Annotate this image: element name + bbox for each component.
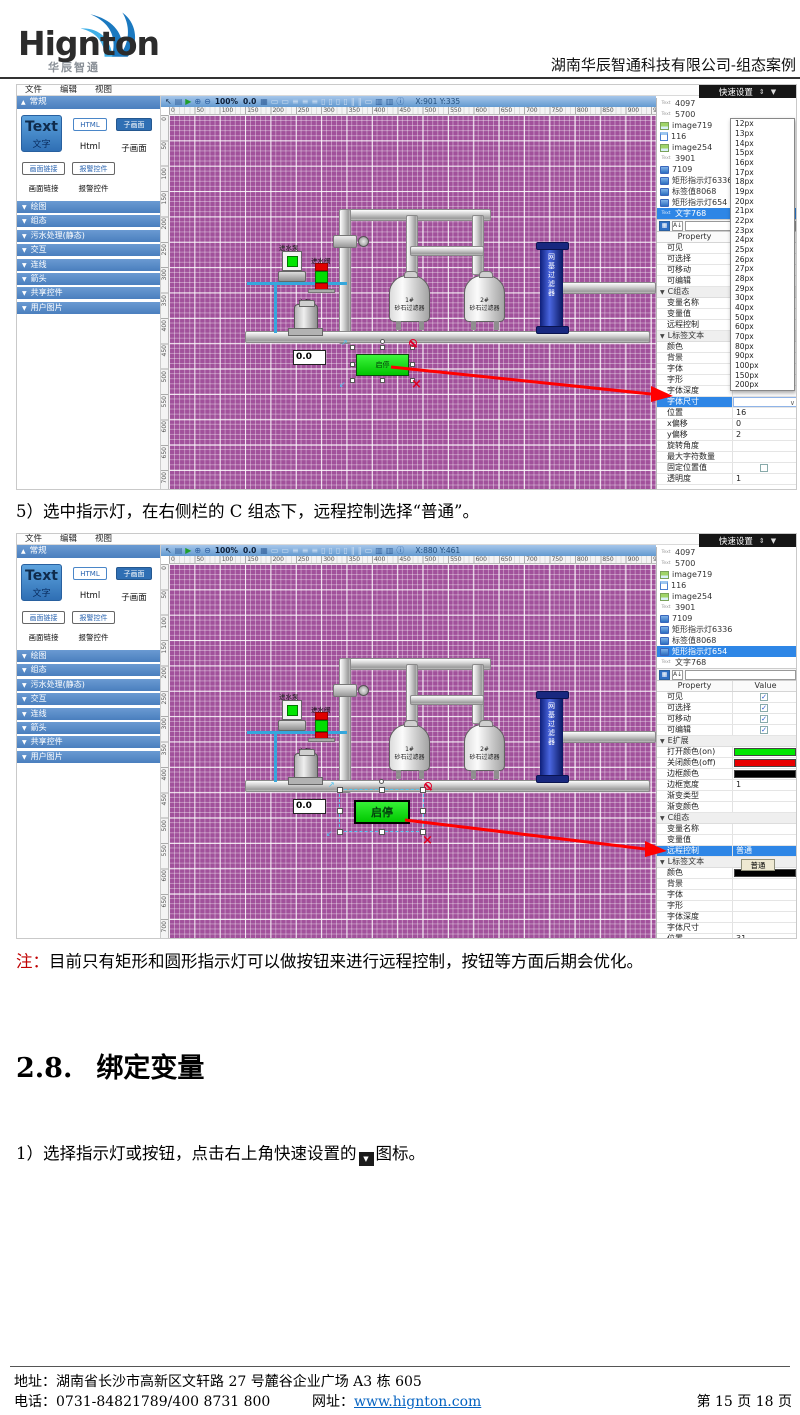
property-name: 变量值 (657, 835, 733, 845)
property-row[interactable]: 透明度1 (657, 474, 797, 485)
panel-section[interactable]: ▼共享控件 (17, 736, 160, 748)
main-pump[interactable] (294, 753, 318, 779)
resize-handle[interactable] (350, 345, 355, 350)
property-name: 字体尺寸 (657, 923, 733, 933)
property-row[interactable]: 可见✓ (657, 692, 797, 703)
pipe-valve[interactable] (333, 235, 357, 248)
zoom-in-icon[interactable]: ⊕ (194, 546, 201, 555)
color-swatch[interactable] (734, 770, 796, 778)
property-row[interactable]: 最大字符数量 (657, 452, 797, 463)
panel-section-common[interactable]: ▲常规 (17, 545, 160, 558)
font-size-option[interactable]: 29px (731, 283, 794, 293)
font-size-option[interactable]: 22px (731, 216, 794, 226)
panel-section[interactable]: ▼污水处理(静态) (17, 230, 160, 242)
tool-palette: Text 文字 HTML Html 子画面 子画面 画面链接 画面链接 报警控件… (17, 109, 160, 201)
object-tree-item[interactable]: 矩形指示灯6336 (657, 624, 797, 635)
font-size-option[interactable]: 200px (731, 380, 794, 390)
ruler-label: 400 (161, 769, 169, 780)
website-link[interactable]: www.hignton.com (354, 1394, 481, 1410)
ruler-label: 350 (161, 744, 169, 755)
font-size-option[interactable]: 18px (731, 177, 794, 187)
pipe-valve[interactable] (333, 684, 357, 697)
blue-filter-column[interactable]: 网基过滤器 (540, 246, 563, 330)
property-name: 固定位置值 (657, 463, 733, 473)
inlet-valve[interactable] (315, 263, 328, 292)
property-value (733, 802, 797, 812)
color-swatch[interactable] (734, 759, 796, 767)
html-tool-button[interactable]: HTML (73, 567, 107, 580)
image-icon (660, 122, 669, 130)
design-canvas[interactable]: 进水泵 进水阀 主泵 1#砂石过滤器 2#砂石过滤器 网基过滤器 0.0 启停 … (169, 115, 656, 490)
screen-link-tool-button[interactable]: 画面链接 (22, 611, 65, 624)
image-tool-icon[interactable]: ▥ (375, 97, 383, 106)
property-value: ✓ (733, 692, 797, 702)
panel-section[interactable]: ▼用户图片 (17, 302, 160, 314)
property-row[interactable]: 字体 (657, 890, 797, 901)
object-tree-item[interactable]: Text4097 (657, 547, 797, 558)
resize-handle[interactable] (380, 345, 385, 350)
category-view-icon[interactable]: ▦ (659, 221, 670, 231)
footer-phone: 电话：0731-84821789/400 8731 800 (14, 1391, 270, 1411)
design-canvas[interactable]: 进水泵 进水阀 主泵 1#砂石过滤器 2#砂石过滤器 网基过滤器 0.0 启停 … (169, 564, 656, 939)
collapse-icon: ▼ (660, 289, 665, 296)
tank-number: 1# (405, 746, 414, 754)
website-label: 网址： (312, 1394, 354, 1410)
run-icon[interactable]: ▶ (185, 546, 191, 555)
property-value (733, 463, 797, 473)
text-tool-button[interactable]: Text 文字 (21, 564, 62, 601)
note-paragraph: 注：目前只有矩形和圆形指示灯可以做按钮来进行远程控制，按钮等方面后期会优化。 (16, 950, 791, 974)
pipe[interactable] (339, 658, 351, 793)
ruler-label: 550 (450, 107, 461, 115)
tank-name: 砂石过滤器 (394, 754, 424, 762)
inlet-pump[interactable] (282, 251, 302, 271)
ruler-label: 100 (222, 556, 233, 564)
resize-handle[interactable] (410, 362, 415, 367)
font-size-option[interactable]: 90px (731, 351, 794, 361)
object-name: 7109 (672, 165, 692, 174)
property-row[interactable]: y偏移2 (657, 430, 797, 441)
property-name: 可见 (657, 692, 733, 702)
disabled-tool-icon: ▭ (271, 546, 279, 555)
property-value (733, 923, 797, 933)
property-row[interactable]: 边框颜色 (657, 769, 797, 780)
main-pump-base (288, 777, 323, 785)
disabled-tool-icon: ▯ (321, 546, 325, 555)
font-size-option[interactable]: 12px (731, 119, 794, 129)
image-tool-icon[interactable]: ▥ (375, 546, 383, 555)
object-tree-item[interactable]: 7109 (657, 613, 797, 624)
object-tree-item[interactable]: Text4097 (657, 98, 797, 109)
font-size-option[interactable]: 26px (731, 254, 794, 264)
property-name: 渐变颜色 (657, 802, 733, 812)
alarm-widget-tool-button[interactable]: 报警控件 (72, 162, 115, 175)
menu-item[interactable]: 文件 (25, 534, 42, 545)
panel-section-label: 共享控件 (31, 288, 63, 297)
cursor-tool-icon[interactable]: ↖ (165, 546, 172, 555)
text-tool-button[interactable]: Text 文字 (21, 115, 62, 152)
panel-section-label: 用户图片 (31, 303, 63, 312)
property-row[interactable]: 变量值 (657, 835, 797, 846)
property-value: 31 (733, 934, 797, 939)
pipe[interactable] (472, 664, 484, 724)
property-value (733, 758, 797, 768)
font-size-option[interactable]: 100px (731, 361, 794, 371)
move-icon[interactable]: ⇕ (759, 88, 765, 96)
subscreen-tool-button[interactable]: 子画面 (116, 118, 152, 131)
resize-handle[interactable] (337, 808, 343, 814)
collapse-icon: ▲ (21, 99, 26, 106)
page-icon (660, 132, 668, 141)
save-icon[interactable]: ▤ (175, 97, 183, 106)
panel-section[interactable]: ▼连线 (17, 259, 160, 271)
panel-section[interactable]: ▼箭头 (17, 273, 160, 285)
property-name: x偏移 (657, 419, 733, 429)
pipe[interactable] (406, 664, 418, 724)
font-size-option[interactable]: 17px (731, 167, 794, 177)
resize-handle[interactable] (379, 829, 385, 835)
panel-section-common[interactable]: ▲常规 (17, 96, 160, 109)
property-row[interactable]: 背景 (657, 879, 797, 890)
alarm-widget-tool-label: 报警控件 (72, 183, 115, 194)
pipe[interactable] (339, 209, 351, 344)
disabled-tool-icon: ▯ (343, 97, 347, 106)
text-tool-en-label: Text (22, 568, 61, 584)
ruler-label: 800 (577, 107, 588, 115)
font-size-option[interactable]: 60px (731, 322, 794, 332)
pipe[interactable] (410, 695, 484, 705)
save-icon[interactable]: ▤ (175, 546, 183, 555)
font-size-option[interactable]: 20px (731, 196, 794, 206)
text-icon: Text (660, 660, 672, 665)
display-icon (660, 626, 669, 634)
property-row[interactable]: 位置16 (657, 408, 797, 419)
signal-line[interactable] (274, 731, 277, 782)
zoom-out-icon[interactable]: ⊖ (204, 97, 211, 106)
property-section[interactable]: ▼C组态 (657, 813, 797, 824)
menu-item[interactable]: 视图 (95, 85, 112, 96)
object-tree-item[interactable]: image719 (657, 569, 797, 580)
panel-section[interactable]: ▼用户图片 (17, 751, 160, 763)
property-name: 变量名称 (657, 824, 733, 834)
property-name: 可移动 (657, 714, 733, 724)
quick-setup-dropdown-icon: ▼ (359, 1152, 374, 1166)
disabled-tool-icon: ▭ (271, 97, 279, 106)
pipe[interactable] (410, 246, 484, 256)
tank-name: 砂石过滤器 (469, 305, 499, 313)
manual-page: Hignton 华辰智通 湖南华辰智通科技有限公司-组态案例 文件编辑视图 快速… (0, 0, 800, 1415)
font-size-option[interactable]: 23px (731, 225, 794, 235)
vertical-ruler: 0501001502002503003504004505005506006507… (161, 115, 169, 490)
font-size-option[interactable]: 70px (731, 332, 794, 342)
property-row[interactable]: 字体尺寸 (657, 923, 797, 934)
property-name: 字体 (657, 364, 733, 374)
grid-icon[interactable]: ▦ (260, 546, 268, 555)
resize-handle[interactable] (350, 378, 355, 383)
property-row[interactable]: 字形 (657, 901, 797, 912)
menu-item[interactable]: 编辑 (60, 85, 77, 96)
resize-handle[interactable] (379, 787, 385, 793)
font-size-option[interactable]: 21px (731, 206, 794, 216)
editor-toolbar: ↖▤▶⊕⊖ 100% 0.0 ▦▭▭≡≡≡▯▯▯▯∥∥▭ ▥▥ⓘ X:901 Y… (161, 96, 656, 107)
info-icon[interactable]: ⓘ (396, 97, 404, 106)
delete-mark-icon[interactable]: × (411, 380, 422, 390)
property-row[interactable]: 旋转角度 (657, 441, 797, 452)
panel-section[interactable]: ▼箭头 (17, 722, 160, 734)
sand-filter-tank-2[interactable]: 2#砂石过滤器 (464, 724, 505, 771)
ruler-label: 250 (298, 556, 309, 564)
sand-filter-tank-1[interactable]: 1#砂石过滤器 (389, 275, 430, 322)
panel-section[interactable]: ▼共享控件 (17, 287, 160, 299)
ruler-label: 100 (161, 168, 169, 179)
property-row[interactable]: 位置31 (657, 934, 797, 939)
quick-setup-dropdown-icon[interactable]: ▼ (771, 88, 776, 96)
property-row[interactable]: 渐变类型 (657, 791, 797, 802)
editor-toolbar: ↖▤▶⊕⊖ 100% 0.0 ▦▭▭≡≡≡▯▯▯▯∥∥▭ ▥▥ⓘ X:880 Y… (161, 545, 656, 556)
valve-flange (308, 289, 335, 293)
property-row[interactable]: 渐变颜色 (657, 802, 797, 813)
resize-handle[interactable] (337, 787, 343, 793)
rotate-handle[interactable] (379, 779, 384, 784)
remote-control-option-chip[interactable]: 普通 (741, 859, 775, 871)
object-name: 7109 (672, 614, 692, 623)
panel-section[interactable]: ▼组态 (17, 664, 160, 676)
valve-flange (308, 738, 335, 742)
property-name: y偏移 (657, 430, 733, 440)
logo-wordmark: Hignton (18, 24, 159, 63)
delete-mark-icon[interactable]: × (422, 836, 433, 846)
object-name: 文字768 (675, 208, 706, 219)
font-size-option[interactable]: 25px (731, 245, 794, 255)
tank-number: 2# (480, 746, 489, 754)
quick-setup-dropdown-icon[interactable]: ▼ (771, 537, 776, 545)
ruler-label: 100 (222, 107, 233, 115)
value-display-box[interactable]: 0.0 (293, 350, 326, 365)
pipe[interactable] (406, 215, 418, 275)
property-value (733, 441, 797, 451)
property-row[interactable]: 远程控制普通 (657, 846, 797, 857)
font-size-option[interactable]: 15px (731, 148, 794, 158)
text-icon: Text (660, 156, 672, 161)
property-row[interactable]: x偏移0 (657, 419, 797, 430)
panel-section[interactable]: ▼绘图 (17, 201, 160, 213)
property-filter-input[interactable] (685, 670, 796, 680)
collapse-icon: ▼ (22, 247, 27, 254)
value-column-header: Value (733, 681, 797, 691)
property-row[interactable]: 固定位置值 (657, 463, 797, 474)
footer-rule (10, 1366, 790, 1367)
ruler-label: 200 (161, 218, 169, 229)
property-row[interactable]: 打开颜色(on) (657, 747, 797, 758)
alarm-widget-tool-button[interactable]: 报警控件 (72, 611, 115, 624)
footer-website: 网址：www.hignton.com (312, 1391, 481, 1411)
valve-handwheel-icon (358, 236, 369, 247)
ruler-label: 400 (374, 107, 385, 115)
disabled-tool-icon: ≡ (311, 97, 318, 106)
object-tree-item[interactable]: image254 (657, 591, 797, 602)
object-tree-item[interactable]: Text3901 (657, 602, 797, 613)
ruler-label: 650 (501, 556, 512, 564)
pipe[interactable] (472, 215, 484, 275)
sand-filter-tank-1[interactable]: 1#砂石过滤器 (389, 724, 430, 771)
rotate-handle[interactable] (380, 339, 385, 344)
collapse-icon: ▼ (660, 738, 665, 745)
checkbox-checked-icon[interactable]: ✓ (760, 715, 768, 723)
html-tool-label: Html (73, 142, 107, 152)
signal-line[interactable] (247, 282, 347, 285)
inlet-pump[interactable] (282, 700, 302, 720)
resize-handle[interactable] (350, 362, 355, 367)
cursor-tool-icon[interactable]: ↖ (165, 97, 172, 106)
property-value: ✓ (733, 725, 797, 735)
grid-icon[interactable]: ▦ (260, 97, 268, 106)
object-tree-item[interactable]: Text5700 (657, 558, 797, 569)
subscreen-tool-button[interactable]: 子画面 (116, 567, 152, 580)
category-view-icon[interactable]: ▦ (659, 670, 670, 680)
font-size-option[interactable]: 24px (731, 235, 794, 245)
object-tree-item[interactable]: 116 (657, 580, 797, 591)
tank-number: 1# (405, 297, 414, 305)
property-section-label: L标签文本 (668, 857, 704, 866)
object-name: 标签值8068 (672, 635, 716, 646)
object-name: image719 (672, 121, 712, 130)
font-size-option[interactable]: 150px (731, 370, 794, 380)
panel-section[interactable]: ▼组态 (17, 215, 160, 227)
cursor-coordinates: X:901 Y:335 (415, 97, 460, 106)
value-display-box[interactable]: 0.0 (293, 799, 326, 814)
sand-filter-tank-2[interactable]: 2#砂石过滤器 (464, 275, 505, 322)
property-row[interactable]: 可选择✓ (657, 703, 797, 714)
quick-setup-bar[interactable]: 快速设置 ⇕ ▼ (699, 85, 796, 98)
property-row[interactable]: 可移动✓ (657, 714, 797, 725)
property-value: 1 (733, 474, 797, 484)
property-name: 可选择 (657, 703, 733, 713)
object-tree-item[interactable]: 标签值8068 (657, 635, 797, 646)
font-size-option[interactable]: 30px (731, 293, 794, 303)
checkbox-icon[interactable] (760, 464, 768, 472)
property-row[interactable]: 边框宽度1 (657, 780, 797, 791)
text-tool-cn-label: 文字 (22, 586, 61, 599)
zoom-in-icon[interactable]: ⊕ (194, 97, 201, 106)
blue-filter-column[interactable]: 网基过滤器 (540, 695, 563, 779)
quick-setup-bar[interactable]: 快速设置 ⇕ ▼ (699, 534, 796, 547)
vertical-ruler: 0501001502002503003504004505005506006507… (161, 564, 169, 939)
font-size-option[interactable]: 14px (731, 138, 794, 148)
property-row[interactable]: 关闭颜色(off) (657, 758, 797, 769)
property-row[interactable]: 字体深度 (657, 912, 797, 923)
disabled-tool-icon: ▭ (281, 97, 289, 106)
font-size-option[interactable]: 50px (731, 312, 794, 322)
html-tool-button[interactable]: HTML (73, 118, 107, 131)
start-stop-indicator-button[interactable]: 启停 (356, 354, 409, 376)
ruler-label: 150 (161, 193, 169, 204)
menu-item[interactable]: 视图 (95, 534, 112, 545)
screen-link-tool-button[interactable]: 画面链接 (22, 162, 65, 175)
image-tool-icon[interactable]: ▥ (386, 97, 394, 106)
property-name: 颜色 (657, 868, 733, 878)
valve-segment (315, 271, 328, 283)
run-icon[interactable]: ▶ (185, 97, 191, 106)
signal-line[interactable] (274, 282, 277, 333)
checkbox-checked-icon[interactable]: ✓ (760, 693, 768, 701)
info-icon[interactable]: ⓘ (396, 546, 404, 555)
selection-group[interactable]: 启停 × ↗ ↙ (352, 347, 414, 382)
font-size-option[interactable]: 27px (731, 264, 794, 274)
property-name: 最大字符数量 (657, 452, 733, 462)
font-size-option[interactable]: 28px (731, 274, 794, 284)
panel-section[interactable]: ▼交互 (17, 693, 160, 705)
property-section[interactable]: ▼E扩展 (657, 736, 797, 747)
panel-section[interactable]: ▼连线 (17, 708, 160, 720)
object-tree-item[interactable]: 矩形指示灯654 (657, 646, 797, 657)
sort-az-icon[interactable]: A↓ (672, 221, 683, 231)
menu-item[interactable]: 编辑 (60, 534, 77, 545)
panel-section[interactable]: ▼污水处理(静态) (17, 679, 160, 691)
font-size-option[interactable]: 16px (731, 158, 794, 168)
sort-az-icon[interactable]: A↓ (672, 670, 683, 680)
font-size-option[interactable]: 13px (731, 129, 794, 139)
property-name: 可编辑 (657, 276, 733, 286)
disabled-tool-icon: ∥ (351, 97, 355, 106)
zoom-out-icon[interactable]: ⊖ (204, 546, 211, 555)
start-stop-indicator-button[interactable]: 启停 (354, 800, 410, 824)
inlet-pump-base (278, 271, 306, 282)
panel-section[interactable]: ▼绘图 (17, 650, 160, 662)
image-tool-icon[interactable]: ▥ (386, 546, 394, 555)
ruler-label: 650 (161, 447, 169, 458)
font-size-option[interactable]: 19px (731, 187, 794, 197)
disabled-tool-icon: ≡ (302, 97, 309, 106)
font-size-option[interactable]: 80px (731, 341, 794, 351)
dropdown-chevron-icon[interactable]: ∨ (790, 398, 795, 408)
disabled-tool-icon: ▭ (365, 97, 373, 106)
ruler-label: 450 (161, 794, 169, 805)
screen-link-tool-label: 画面链接 (22, 632, 65, 643)
checkbox-checked-icon[interactable]: ✓ (760, 704, 768, 712)
resize-handle[interactable] (337, 829, 343, 835)
main-pump[interactable] (294, 304, 318, 330)
color-swatch[interactable] (734, 748, 796, 756)
property-value: 16 (733, 408, 797, 418)
pipe[interactable] (561, 731, 656, 743)
move-icon[interactable]: ⇕ (759, 537, 765, 545)
disabled-tool-icon: ▯ (343, 546, 347, 555)
resize-handle[interactable] (380, 378, 385, 383)
checkbox-checked-icon[interactable]: ✓ (760, 726, 768, 734)
ruler-label: 800 (577, 556, 588, 564)
property-row[interactable]: 可编辑✓ (657, 725, 797, 736)
property-row[interactable]: 字体尺寸∨ (657, 397, 797, 408)
panel-section-label: 绘图 (31, 202, 47, 211)
resize-handle[interactable] (420, 808, 426, 814)
object-name: 矩形指示灯654 (672, 646, 727, 657)
ruler-label: 900 (628, 556, 639, 564)
panel-section[interactable]: ▼交互 (17, 244, 160, 256)
property-section[interactable]: ▼L标签文本 (657, 857, 797, 868)
inlet-valve[interactable] (315, 712, 328, 741)
property-value (733, 901, 797, 911)
object-tree-item[interactable]: Text文字768 (657, 657, 797, 668)
pipe[interactable] (561, 282, 656, 294)
signal-line[interactable] (247, 731, 347, 734)
property-row[interactable]: 变量名称 (657, 824, 797, 835)
font-size-option[interactable]: 40px (731, 303, 794, 313)
ruler-label: 650 (161, 896, 169, 907)
menu-item[interactable]: 文件 (25, 85, 42, 96)
selection-group[interactable]: 启停 × ↗ ↙ (339, 789, 424, 832)
property-row[interactable]: 颜色 (657, 868, 797, 879)
text-tool-cn-label: 文字 (22, 137, 61, 150)
